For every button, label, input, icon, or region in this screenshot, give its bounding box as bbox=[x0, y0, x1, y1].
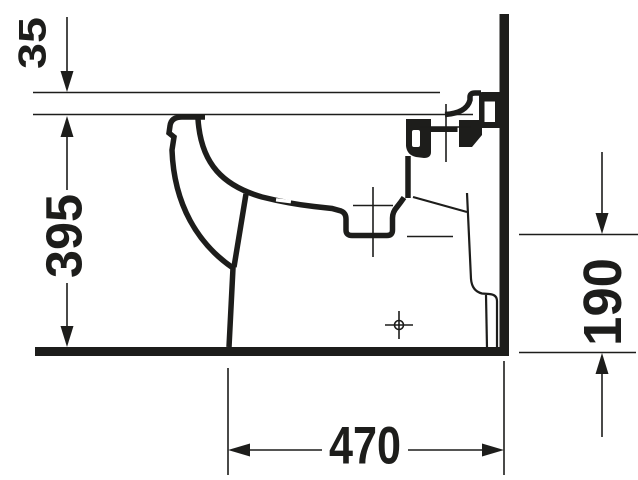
bidet-profile bbox=[169, 117, 497, 348]
rear-foot-inner-line bbox=[486, 295, 487, 348]
dim-470-label: 470 bbox=[329, 417, 401, 476]
dimension-395: 395 bbox=[36, 116, 93, 347]
wall-section bbox=[500, 14, 510, 356]
fixing-hole-mark bbox=[385, 311, 413, 339]
dim-35-label: 35 bbox=[12, 17, 55, 69]
room-outline bbox=[35, 14, 509, 356]
dim-395-arrow-up bbox=[61, 116, 74, 137]
rear-body-outline bbox=[467, 193, 497, 348]
wall-bracket bbox=[479, 92, 500, 128]
technical-drawing-canvas: 35 395 190 470 bbox=[0, 0, 638, 480]
deck-right-block bbox=[459, 120, 482, 147]
dim-395-label: 395 bbox=[36, 194, 93, 278]
dimension-190: 190 bbox=[573, 152, 633, 437]
floor-section bbox=[35, 347, 509, 356]
bidet-elevation-drawing: 35 395 190 470 bbox=[0, 0, 638, 480]
dimension-35: 35 bbox=[12, 17, 74, 92]
dim-190-arrow-up bbox=[596, 353, 609, 374]
dim-470-arrow-right bbox=[482, 444, 504, 457]
deck-hook-slot bbox=[412, 130, 420, 147]
dim-35-arrow-down bbox=[61, 71, 74, 92]
deck-wall-connector bbox=[445, 93, 481, 115]
tap-deck bbox=[406, 92, 500, 158]
front-rim-and-leg bbox=[169, 117, 233, 347]
dim-395-arrow-down bbox=[61, 326, 74, 347]
bowl-underside-line bbox=[234, 194, 246, 267]
dim-190-label: 190 bbox=[573, 258, 633, 346]
rear-body-diagonal bbox=[413, 197, 467, 212]
dimension-470: 470 bbox=[228, 417, 504, 476]
dim-470-arrow-left bbox=[228, 444, 250, 457]
dim-190-arrow-down bbox=[596, 213, 609, 234]
